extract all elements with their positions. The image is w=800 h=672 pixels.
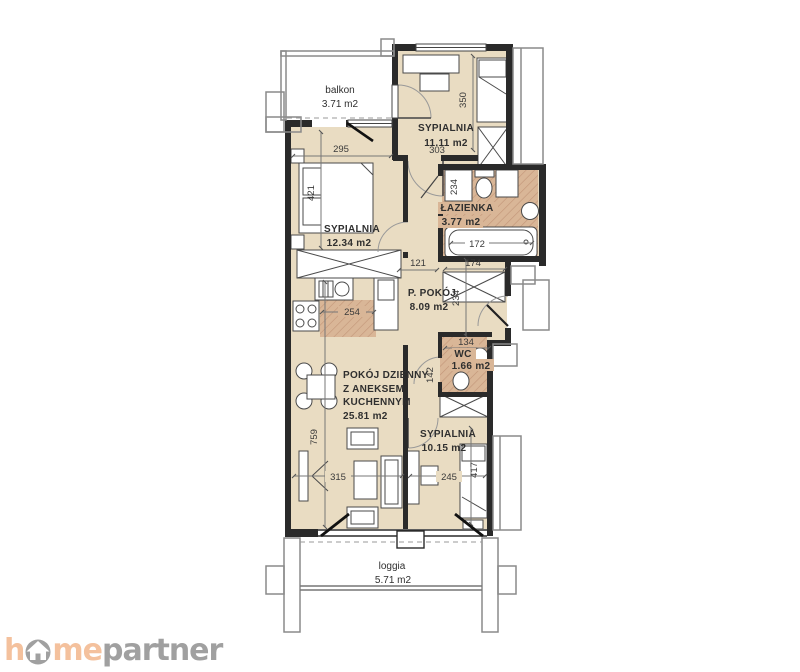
room-area-p-pokoj: 8.09 m2 — [410, 302, 449, 313]
room-area-balkon: 3.71 m2 — [322, 99, 359, 110]
room-label-balkon: balkon — [325, 85, 354, 96]
room-area-wc: 1.66 m2 — [452, 361, 491, 372]
room-label-wc: WC — [454, 349, 471, 360]
room-area-sypialnia-left: 12.34 m2 — [327, 238, 372, 249]
floorplan-drawing: balkon 3.71 m2 SYPIALNIA 11.11 m2 SYPIAL… — [0, 0, 800, 672]
dim-172: 172 — [469, 239, 485, 250]
room-area-loggia: 5.71 m2 — [375, 575, 412, 586]
logo-text-h: h — [4, 633, 24, 668]
room-label-loggia: loggia — [379, 561, 406, 572]
room-area-sypialnia-bottom: 10.15 m2 — [422, 443, 467, 454]
homepartner-logo: h me partner — [4, 632, 222, 668]
dim-234-bath: 234 — [449, 179, 460, 195]
room-area-living: 25.81 m2 — [343, 411, 388, 422]
logo-text-me: me — [52, 633, 102, 668]
dim-234-hall: 234 — [451, 290, 462, 306]
house-icon — [23, 636, 53, 666]
room-area-lazienka: 3.77 m2 — [442, 217, 481, 228]
dim-350: 350 — [458, 92, 469, 108]
wc-toilet-icon — [453, 372, 469, 390]
room-label-p-pokoj: P. POKÓJ — [408, 286, 456, 299]
dim-245: 245 — [441, 472, 457, 483]
room-label-sypialnia-bottom: SYPIALNIA — [420, 429, 476, 440]
dim-315: 315 — [330, 472, 346, 483]
dim-417: 417 — [469, 462, 480, 478]
floorplan-page: balkon 3.71 m2 SYPIALNIA 11.11 m2 SYPIAL… — [0, 0, 800, 672]
dim-303: 303 — [429, 145, 445, 156]
stove-icon — [293, 301, 319, 331]
dim-295: 295 — [333, 144, 349, 155]
dim-759: 759 — [309, 429, 320, 445]
logo-text-partner: partner — [102, 633, 222, 668]
dim-121: 121 — [410, 258, 426, 269]
dim-254: 254 — [344, 307, 360, 318]
dim-134: 134 — [458, 337, 474, 348]
room-label-sypialnia-left: SYPIALNIA — [324, 224, 380, 235]
dim-421: 421 — [306, 185, 317, 201]
room-label-living-1: POKÓJ DZIENNY — [343, 368, 429, 381]
kitchen-sink-icon — [335, 282, 349, 296]
room-label-sypialnia-top: SYPIALNIA — [418, 123, 474, 134]
bath-sink-icon — [522, 203, 539, 220]
room-label-living-3: KUCHENNYM — [343, 397, 411, 408]
room-label-lazienka: ŁAZIENKA — [441, 203, 494, 214]
kitchen-counter — [320, 300, 376, 337]
toilet-icon — [476, 178, 492, 198]
dim-142: 142 — [425, 367, 436, 383]
room-label-living-2: Z ANEKSEM — [343, 384, 404, 395]
dim-174: 174 — [465, 258, 481, 269]
